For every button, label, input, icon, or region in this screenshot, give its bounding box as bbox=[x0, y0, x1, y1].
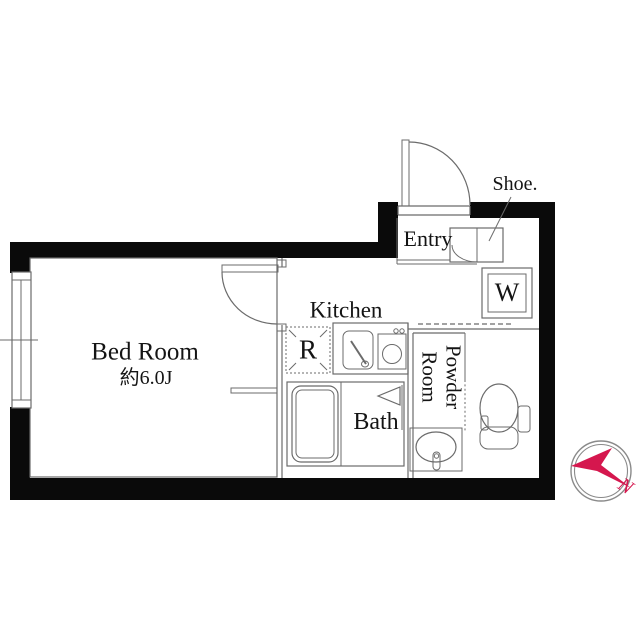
compass-icon: N bbox=[571, 441, 638, 501]
entry-label: Entry bbox=[404, 228, 453, 250]
powder-sink-icon bbox=[410, 428, 462, 471]
bathtub-icon bbox=[292, 386, 338, 462]
bedroom-door-icon bbox=[222, 265, 278, 324]
entry-door-icon bbox=[402, 140, 470, 206]
kitchen-counter-icon bbox=[333, 323, 408, 374]
washing-machine-label: W bbox=[495, 280, 520, 306]
sink-icon bbox=[343, 331, 373, 369]
window-icon bbox=[0, 272, 38, 408]
bedroom-area-label: 約6.0J bbox=[120, 368, 173, 388]
floor-plan: N Bed Room 約6.0J Kitchen R Bath Powder R… bbox=[0, 0, 640, 640]
kitchen-label: Kitchen bbox=[310, 299, 383, 322]
refrigerator-label: R bbox=[299, 337, 317, 364]
powder-room-label: Powder Room bbox=[417, 345, 464, 409]
toilet-icon bbox=[480, 384, 530, 449]
stove-icon bbox=[378, 329, 406, 369]
bedroom-label: Bed Room bbox=[91, 340, 199, 365]
shoe-cabinet-label: Shoe. bbox=[493, 174, 538, 194]
bath-label: Bath bbox=[353, 410, 398, 434]
